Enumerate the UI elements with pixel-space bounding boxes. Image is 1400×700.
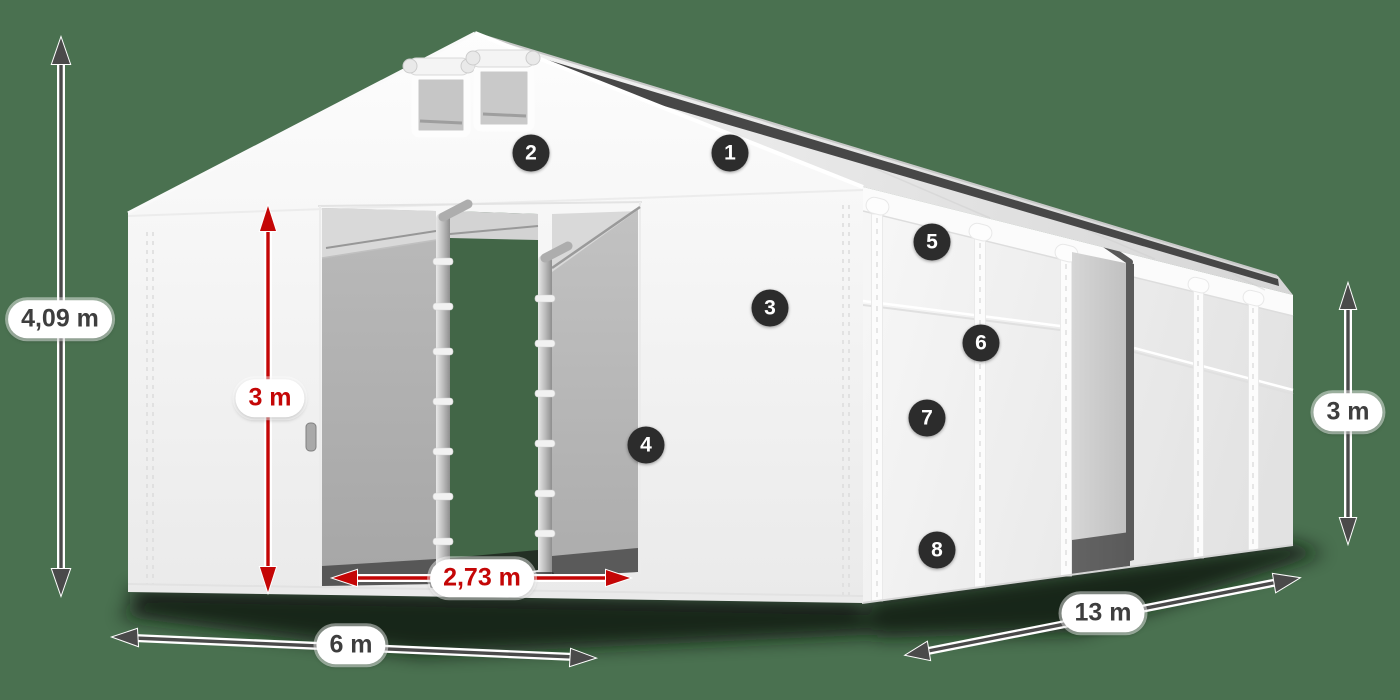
callout-badge-2[interactable]: 2	[513, 135, 550, 172]
entrance-gap	[450, 211, 538, 584]
callout-badge-8[interactable]: 8	[919, 532, 956, 569]
tent-dimensions-diagram: 1 2 3 4 5 6 7 8 4,09 m 3 m 2,73 m 3 m 6 …	[0, 0, 1400, 700]
door-handle	[306, 423, 316, 451]
total-height-label: 4,09 m	[8, 300, 112, 338]
callout-badge-1[interactable]: 1	[712, 135, 749, 172]
width-label: 6 m	[316, 626, 385, 664]
callout-badge-3[interactable]: 3	[752, 290, 789, 327]
side-door-opening	[1072, 240, 1134, 574]
entrance-opening-left	[322, 208, 436, 586]
entrance-width-label: 2,73 m	[430, 559, 534, 597]
callout-badge-6[interactable]: 6	[963, 325, 1000, 362]
entrance-opening-right	[552, 207, 640, 577]
tent-illustration	[0, 0, 1400, 700]
entrance-height-label: 3 m	[235, 379, 304, 417]
callout-badge-5[interactable]: 5	[914, 224, 951, 261]
callout-badge-4[interactable]: 4	[628, 427, 665, 464]
length-label: 13 m	[1062, 594, 1145, 632]
callout-badge-7[interactable]: 7	[909, 400, 946, 437]
side-height-label: 3 m	[1313, 393, 1382, 431]
